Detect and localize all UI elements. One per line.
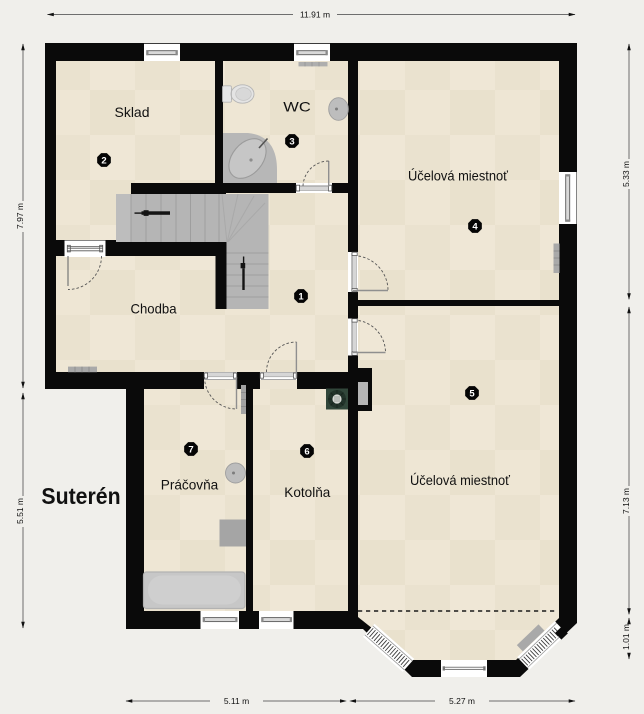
svg-text:Suterén: Suterén [41, 483, 120, 509]
svg-text:5: 5 [469, 389, 475, 400]
svg-text:1.01 m: 1.01 m [621, 624, 631, 650]
svg-text:Účelová miestnoť: Účelová miestnoť [410, 472, 511, 488]
svg-text:5.33 m: 5.33 m [621, 161, 631, 187]
svg-text:5.11 m: 5.11 m [224, 696, 249, 706]
svg-text:Práčovňa: Práčovňa [161, 477, 219, 493]
svg-text:7.13 m: 7.13 m [621, 488, 631, 514]
svg-text:Chodba: Chodba [131, 301, 177, 317]
svg-text:6: 6 [304, 447, 309, 458]
svg-text:11.91 m: 11.91 m [300, 10, 330, 20]
svg-text:7.97 m: 7.97 m [15, 203, 25, 229]
svg-text:WC: WC [283, 99, 311, 115]
svg-text:Kotolňa: Kotolňa [284, 484, 330, 500]
svg-text:5.27 m: 5.27 m [449, 696, 475, 706]
svg-text:Sklad: Sklad [115, 104, 150, 120]
svg-text:5.51 m: 5.51 m [15, 498, 25, 524]
svg-text:3: 3 [289, 137, 294, 148]
svg-text:4: 4 [472, 222, 478, 233]
svg-text:Účelová miestnoť: Účelová miestnoť [408, 168, 509, 184]
svg-text:7: 7 [188, 445, 193, 456]
svg-text:1: 1 [298, 292, 304, 303]
svg-text:2: 2 [101, 156, 106, 167]
